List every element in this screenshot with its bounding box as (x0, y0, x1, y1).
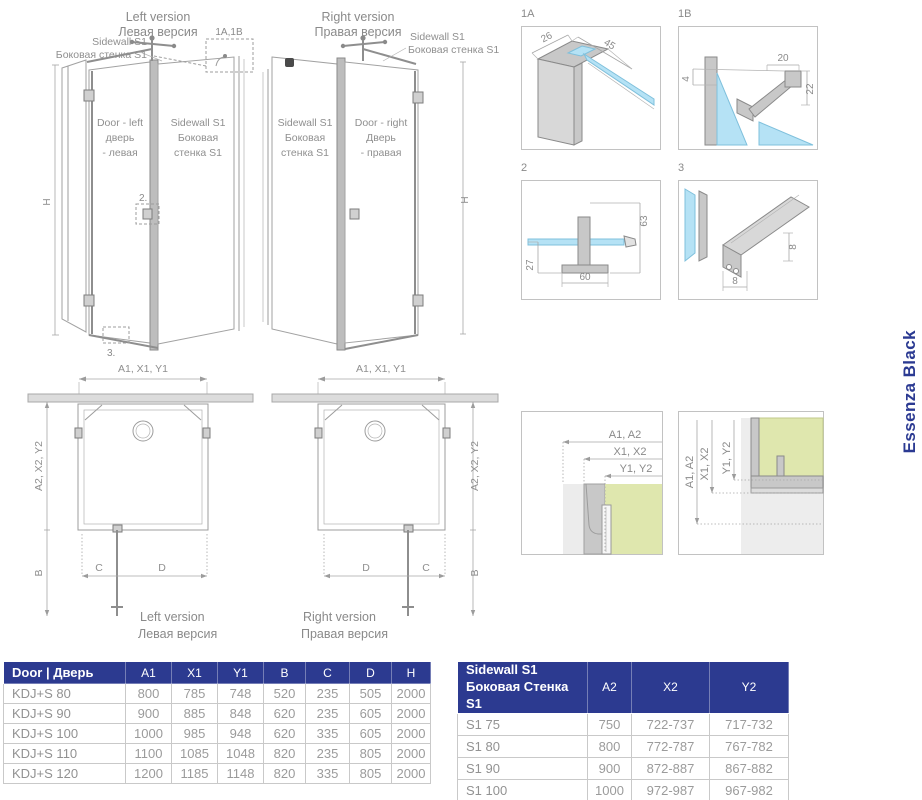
right-version-elevation-drawing: Right version Правая версия Sidewall S1 … (255, 4, 505, 360)
value-cell: 800 (588, 735, 632, 757)
plan-caption-en: Right version (303, 610, 376, 624)
detail-2-dim-27: 27 (525, 259, 536, 271)
plan-dim-b: B (469, 569, 481, 576)
value-cell: 900 (126, 704, 172, 724)
model-cell: S1 90 (458, 757, 588, 779)
sidewall-label-ru2: стенка S1 (281, 147, 329, 159)
value-cell: 767-782 (710, 735, 789, 757)
col-header-h: H (392, 662, 431, 684)
detail-3-geometry (685, 189, 809, 291)
sidewall-table-title: Sidewall S1 Боковая Стенка S1 (458, 662, 588, 714)
door-handle (350, 209, 359, 219)
value-cell: 235 (306, 684, 350, 704)
detail-1b-dim-22: 22 (805, 83, 816, 95)
wall (272, 394, 498, 402)
table-row: KDJ+S 100 1000 985 948 620 335 605 2000 (4, 724, 431, 744)
spec-sheet-page: Left version Левая версия Sidewall S1 Бо… (0, 0, 922, 800)
ref-2: 2. (139, 193, 147, 204)
value-cell: 1100 (126, 744, 172, 764)
value-cell: 967-982 (710, 779, 789, 800)
detail-1b-drawing: 20 4 22 (678, 26, 818, 150)
value-cell: 805 (350, 764, 392, 784)
plan-dim-d: D (158, 562, 166, 574)
right-version-plan-drawing: A1, X1, Y1 A2, X2, Y2 B D C Right versio… (255, 358, 505, 654)
value-cell: 867-882 (710, 757, 789, 779)
plan-caption-en: Left version (140, 610, 205, 624)
detail-2-drawing: 63 27 60 (521, 180, 661, 300)
plan-dim-top: A1, X1, Y1 (356, 363, 406, 375)
detail-1b-dim-4: 4 (681, 76, 692, 82)
table-row: KDJ+S 120 1200 1185 1148 820 335 805 200… (4, 764, 431, 784)
col-header-c: C (306, 662, 350, 684)
detail-3-label: 3 (678, 162, 684, 174)
ref-1a1b: 1A,1B (215, 27, 243, 38)
door-handle (143, 209, 152, 219)
right-version-title-en: Right version (322, 10, 395, 24)
detail-1b-geometry (693, 57, 813, 145)
detail-1a-geometry (532, 35, 654, 145)
value-cell: 805 (350, 744, 392, 764)
corner-detail-plan-drawing: A1, A2 X1, X2 Y1, Y2 (521, 411, 663, 555)
table-row: S1 75 750 722-737 717-732 (458, 713, 789, 735)
plan-caption-ru: Левая версия (138, 627, 217, 641)
value-cell: 1085 (172, 744, 218, 764)
value-cell: 520 (264, 684, 306, 704)
value-cell: 235 (306, 704, 350, 724)
value-cell: 848 (218, 704, 264, 724)
detail-1a-label: 1A (521, 8, 534, 20)
corner-a-dim-a: A1, A2 (609, 429, 641, 441)
left-version-plan-drawing: A1, X1, Y1 A2, X2, Y2 B C D Left version… (10, 358, 255, 654)
value-cell: 985 (172, 724, 218, 744)
detail-2-dim-63: 63 (639, 215, 650, 227)
sidewall-label-ru2: стенка S1 (174, 147, 222, 159)
value-cell: 885 (172, 704, 218, 724)
sidewall-callout-en: Sidewall S1 (92, 36, 147, 48)
right-version-title-ru: Правая версия (315, 25, 402, 39)
corner-b-dim-a: A1, A2 (684, 456, 696, 488)
table-row: KDJ+S 110 1100 1085 1048 820 235 805 200… (4, 744, 431, 764)
left-version-title-en: Left version (126, 10, 191, 24)
door-dimensions-table: Door | Дверь A1 X1 Y1 B C D H KDJ+S 80 8… (3, 661, 431, 784)
col-header-a1: A1 (126, 662, 172, 684)
shower-tray (78, 404, 208, 530)
left-plan-geometry (28, 377, 253, 617)
value-cell: 900 (588, 757, 632, 779)
sidewall-callout-en: Sidewall S1 (410, 31, 465, 43)
value-cell: 1000 (588, 779, 632, 800)
model-cell: KDJ+S 80 (4, 684, 126, 704)
value-cell: 872-887 (632, 757, 710, 779)
value-cell: 717-732 (710, 713, 789, 735)
corner-b-dim-y: Y1, Y2 (721, 442, 733, 475)
door-label-ru2: - левая (102, 147, 137, 159)
col-header-x1: X1 (172, 662, 218, 684)
table-row: S1 90 900 872-887 867-882 (458, 757, 789, 779)
model-cell: S1 75 (458, 713, 588, 735)
door-table-header-row: Door | Дверь A1 X1 Y1 B C D H (4, 662, 431, 684)
value-cell: 1148 (218, 764, 264, 784)
door-table-title: Door | Дверь (4, 662, 126, 684)
col-header-y2: Y2 (710, 662, 789, 714)
value-cell: 605 (350, 704, 392, 724)
value-cell: 2000 (392, 724, 431, 744)
detail-3-dim-8-h: 8 (732, 276, 738, 287)
left-elevation-geometry (52, 35, 253, 350)
plan-dim-side: A2, X2, Y2 (469, 441, 481, 491)
value-cell: 972-987 (632, 779, 710, 800)
model-cell: KDJ+S 110 (4, 744, 126, 764)
value-cell: 620 (264, 704, 306, 724)
value-cell: 1048 (218, 744, 264, 764)
col-header-d: D (350, 662, 392, 684)
sidewall-label-en: Sidewall S1 (278, 117, 333, 129)
value-cell: 605 (350, 724, 392, 744)
right-plan-geometry (272, 377, 498, 617)
wall (28, 394, 253, 402)
model-cell: KDJ+S 90 (4, 704, 126, 724)
value-cell: 800 (126, 684, 172, 704)
table-row: S1 80 800 772-787 767-782 (458, 735, 789, 757)
value-cell: 505 (350, 684, 392, 704)
plan-dim-c: C (422, 562, 430, 574)
hinge-top (413, 92, 423, 103)
value-cell: 1200 (126, 764, 172, 784)
sidewall-table-header-row: Sidewall S1 Боковая Стенка S1 A2 X2 Y2 (458, 662, 789, 714)
plan-caption-ru: Правая версия (301, 627, 388, 641)
detail-3-drawing: 8 8 (678, 180, 818, 300)
model-cell: KDJ+S 120 (4, 764, 126, 784)
sidewall-label-ru1: Боковая (285, 132, 325, 144)
corner-a-dim-y: Y1, Y2 (620, 463, 653, 475)
dim-h-left: H (42, 198, 53, 205)
value-cell: 235 (306, 744, 350, 764)
sidewall-table-title-en: Sidewall S1 (466, 662, 587, 679)
col-header-a2: A2 (588, 662, 632, 714)
value-cell: 2000 (392, 684, 431, 704)
value-cell: 1000 (126, 724, 172, 744)
sidewall-label-en: Sidewall S1 (171, 117, 226, 129)
value-cell: 750 (588, 713, 632, 735)
table-row: KDJ+S 90 900 885 848 620 235 605 2000 (4, 704, 431, 724)
detail-1b-label: 1B (678, 8, 691, 20)
table-row: S1 100 1000 972-987 967-982 (458, 779, 789, 800)
sidewall-callout-ru: Боковая стенка S1 (56, 49, 147, 61)
detail-1a-drawing: 26 45 (521, 26, 661, 150)
value-cell: 748 (218, 684, 264, 704)
table-row: KDJ+S 80 800 785 748 520 235 505 2000 (4, 684, 431, 704)
plan-dim-d: D (362, 562, 370, 574)
value-cell: 2000 (392, 744, 431, 764)
corner-a-dim-x: X1, X2 (613, 446, 646, 458)
corner-b-dim-x: X1, X2 (699, 447, 711, 480)
col-header-y1: Y1 (218, 662, 264, 684)
plan-dim-side: A2, X2, Y2 (33, 441, 45, 491)
left-version-elevation-drawing: Left version Левая версия Sidewall S1 Бо… (10, 4, 255, 360)
door-label-ru1: Дверь (366, 132, 396, 144)
series-name-label: Essenza Black (900, 330, 920, 453)
hinge-bottom (413, 295, 423, 306)
value-cell: 335 (306, 724, 350, 744)
hinge-top (84, 90, 94, 101)
value-cell: 1185 (172, 764, 218, 784)
value-cell: 772-787 (632, 735, 710, 757)
value-cell: 820 (264, 744, 306, 764)
value-cell: 2000 (392, 704, 431, 724)
model-cell: KDJ+S 100 (4, 724, 126, 744)
dim-h-right: H (460, 196, 471, 203)
value-cell: 620 (264, 724, 306, 744)
detail-2-label: 2 (521, 162, 527, 174)
detail-2-dim-60: 60 (579, 272, 591, 283)
corner-detail-b-geometry (695, 418, 823, 554)
value-cell: 335 (306, 764, 350, 784)
plan-dim-b: B (33, 569, 45, 576)
plan-dim-top: A1, X1, Y1 (118, 363, 168, 375)
hinge-bottom (84, 295, 94, 306)
door-label-ru2: - правая (361, 147, 402, 159)
model-cell: S1 100 (458, 779, 588, 800)
door-label-ru1: дверь (106, 132, 135, 144)
value-cell: 820 (264, 764, 306, 784)
sidewall-table-title-ru: Боковая Стенка S1 (466, 679, 587, 713)
corner-detail-section-drawing: A1, A2 X1, X2 Y1, Y2 (678, 411, 824, 555)
sidewall-callout-ru: Боковая стенка S1 (408, 44, 499, 56)
door-label-en: Door - left (97, 117, 143, 129)
value-cell: 722-737 (632, 713, 710, 735)
value-cell: 948 (218, 724, 264, 744)
value-cell: 2000 (392, 764, 431, 784)
sidewall-dimensions-table: Sidewall S1 Боковая Стенка S1 A2 X2 Y2 S… (457, 661, 789, 800)
value-cell: 785 (172, 684, 218, 704)
model-cell: S1 80 (458, 735, 588, 757)
detail-1b-dim-20: 20 (777, 53, 789, 64)
wall-bracket-knob (285, 58, 294, 67)
col-header-b: B (264, 662, 306, 684)
door-label-en: Door - right (355, 117, 408, 129)
detail-3-dim-8-v: 8 (788, 244, 799, 250)
col-header-x2: X2 (632, 662, 710, 714)
right-elevation-geometry (263, 35, 466, 350)
plan-dim-c: C (95, 562, 103, 574)
sidewall-label-ru1: Боковая (178, 132, 218, 144)
